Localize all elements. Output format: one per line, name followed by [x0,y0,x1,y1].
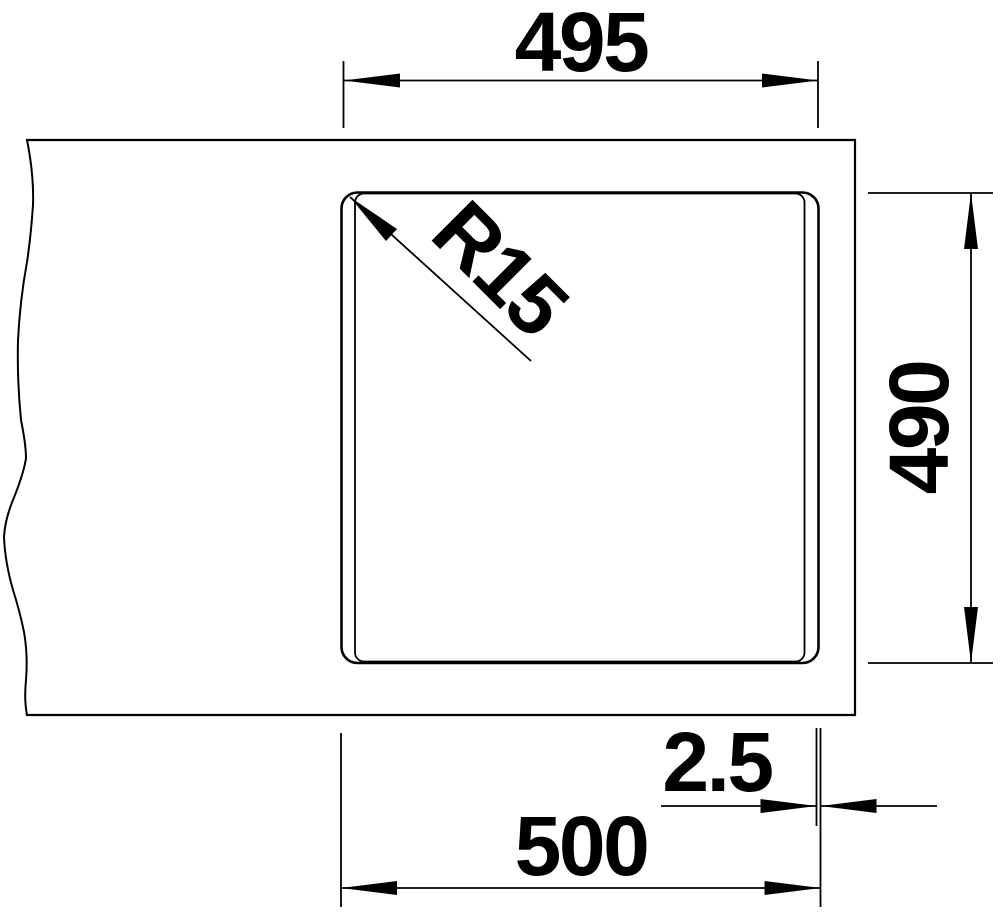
arrowhead-r15 [350,197,397,241]
sink-bowl-outer-edge [342,193,819,664]
arrowhead-495-right [762,74,818,88]
arrowhead-490-up [964,193,978,249]
dimension-label-cutout-width: 495 [515,0,648,84]
countertop-break-edge [4,140,33,715]
arrowhead-495-left [344,74,401,88]
arrowhead-2_5-right [821,799,877,813]
arrowhead-500-right [765,881,821,895]
drawing-canvas: 495 R15 490 2.5 500 [0,0,1000,919]
dimension-label-cutout-depth: 490 [877,362,961,495]
dimension-label-overall-width: 500 [515,804,648,888]
dimension-label-rim-offset: 2.5 [662,720,771,804]
arrowhead-490-down [964,607,978,663]
arrowhead-500-left [341,881,397,895]
sink-technical-drawing [0,0,1000,919]
